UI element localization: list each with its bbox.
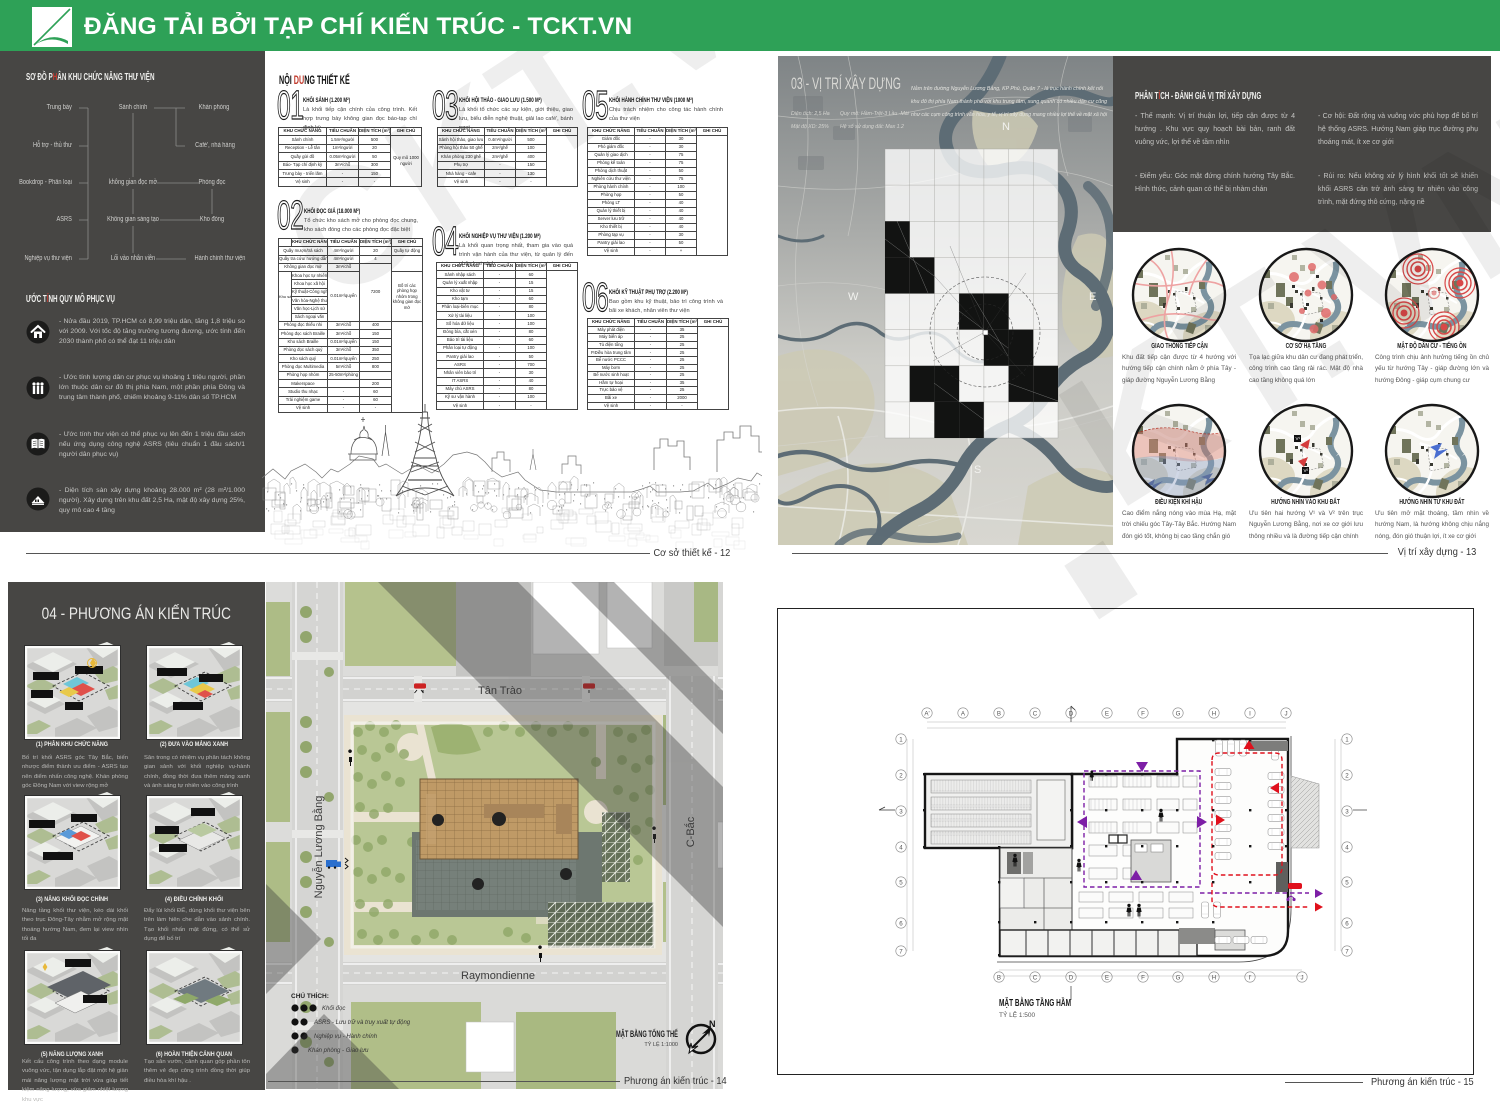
svg-text:TỶ LỆ 1:500: TỶ LỆ 1:500 [999, 1010, 1036, 1019]
svg-text:5: 5 [899, 880, 903, 887]
svg-text:4: 4 [1345, 845, 1349, 852]
svg-text:(3) NÂNG KHỐI ĐỌC CHÍNH: (3) NÂNG KHỐI ĐỌC CHÍNH [36, 893, 108, 903]
svg-text:C: C [1033, 975, 1038, 982]
svg-text:(5) NĂNG LƯỢNG XANH: (5) NĂNG LƯỢNG XANH [41, 1049, 103, 1058]
svg-text:Quy mô: Hầm-Trệt-3 Lầu -Mái: Quy mô: Hầm-Trệt-3 Lầu -Mái [840, 111, 910, 117]
svg-text:2: 2 [1345, 773, 1349, 780]
svg-text:G: G [1176, 975, 1181, 982]
svg-text:D: D [1069, 975, 1074, 982]
svg-text:1: 1 [1345, 737, 1349, 744]
svg-text:E: E [1105, 975, 1109, 982]
svg-text:như các cụm công trình văn hóa: như các cụm công trình văn hóa, y tế, vị… [911, 111, 1108, 118]
svg-text:B: B [997, 711, 1001, 718]
svg-text:(6) HOÀN THIỆN CẢNH QUAN: (6) HOÀN THIỆN CẢNH QUAN [156, 1049, 232, 1058]
svg-text:I': I' [1249, 975, 1252, 982]
svg-text:7: 7 [899, 949, 903, 956]
svg-text:A: A [961, 711, 966, 718]
svg-text:A': A' [924, 711, 929, 718]
svg-text:3: 3 [1345, 809, 1349, 816]
svg-text:F: F [1141, 975, 1145, 982]
svg-text:J: J [1300, 975, 1303, 982]
svg-text:B: B [997, 975, 1001, 982]
svg-text:W: W [848, 291, 859, 303]
svg-text:1: 1 [899, 737, 903, 744]
svg-text:N: N [709, 1019, 716, 1029]
svg-text:2: 2 [899, 773, 903, 780]
svg-text:Diện tích: 2,5 Ha: Diện tích: 2,5 Ha [791, 111, 830, 117]
svg-text:V²: V² [1304, 468, 1309, 473]
svg-text:Nguyễn Lương Bằng: Nguyễn Lương Bằng [312, 796, 325, 899]
svg-text:S: S [974, 464, 981, 476]
svg-text:Mật độ XD: 25%: Mật độ XD: 25% [791, 124, 829, 130]
svg-text:khu đô thị phía Nam thành phố: khu đô thị phía Nam thành phố với khu tr… [911, 98, 1108, 105]
svg-text:V¹: V¹ [1296, 436, 1301, 441]
svg-text:E: E [1105, 711, 1109, 718]
svg-text:CHÚ THÍCH:: CHÚ THÍCH: [291, 991, 329, 1000]
svg-text:Hệ số sử dụng đất: Max 1.2: Hệ số sử dụng đất: Max 1.2 [840, 123, 904, 130]
svg-text:N: N [1002, 121, 1010, 133]
svg-text:G: G [1176, 711, 1181, 718]
svg-text:E: E [1089, 291, 1096, 303]
svg-text:TỶ LỆ 1:1000: TỶ LỆ 1:1000 [644, 1040, 678, 1048]
svg-text:C: C [1033, 711, 1038, 718]
svg-text:MẶT BẰNG TẦNG HẦM: MẶT BẰNG TẦNG HẦM [999, 996, 1071, 1009]
svg-text:5: 5 [1345, 880, 1349, 887]
svg-text:Khối đọc: Khối đọc [322, 1005, 345, 1012]
svg-text:6: 6 [1345, 921, 1349, 928]
svg-text:J: J [1284, 711, 1287, 718]
svg-text:4: 4 [899, 845, 903, 852]
svg-text:F: F [1141, 711, 1145, 718]
svg-text:(4) ĐIỀU CHỈNH KHỐI: (4) ĐIỀU CHỈNH KHỐI [165, 893, 223, 903]
svg-text:H: H [1212, 975, 1216, 982]
svg-text:(1) PHÂN KHU CHỨC NĂNG: (1) PHÂN KHU CHỨC NĂNG [36, 739, 108, 748]
svg-text:03 - VỊ TRÍ XÂY DỰNG: 03 - VỊ TRÍ XÂY DỰNG [791, 74, 901, 93]
svg-text:Raymondienne: Raymondienne [461, 970, 535, 982]
svg-text:6: 6 [899, 921, 903, 928]
svg-text:3: 3 [899, 809, 903, 816]
svg-text:7: 7 [1345, 949, 1349, 956]
svg-text:I: I [1249, 711, 1251, 718]
svg-text:(2) ĐƯA VÀO MẢNG XANH: (2) ĐƯA VÀO MẢNG XANH [160, 739, 228, 748]
svg-text:Nằm trên đường Nguyễn Lương Bằ: Nằm trên đường Nguyễn Lương Bằng, KP Phú… [911, 85, 1104, 92]
svg-text:H: H [1212, 711, 1216, 718]
svg-text:MẶT BẰNG TỔNG THỂ: MẶT BẰNG TỔNG THỂ [616, 1028, 678, 1039]
